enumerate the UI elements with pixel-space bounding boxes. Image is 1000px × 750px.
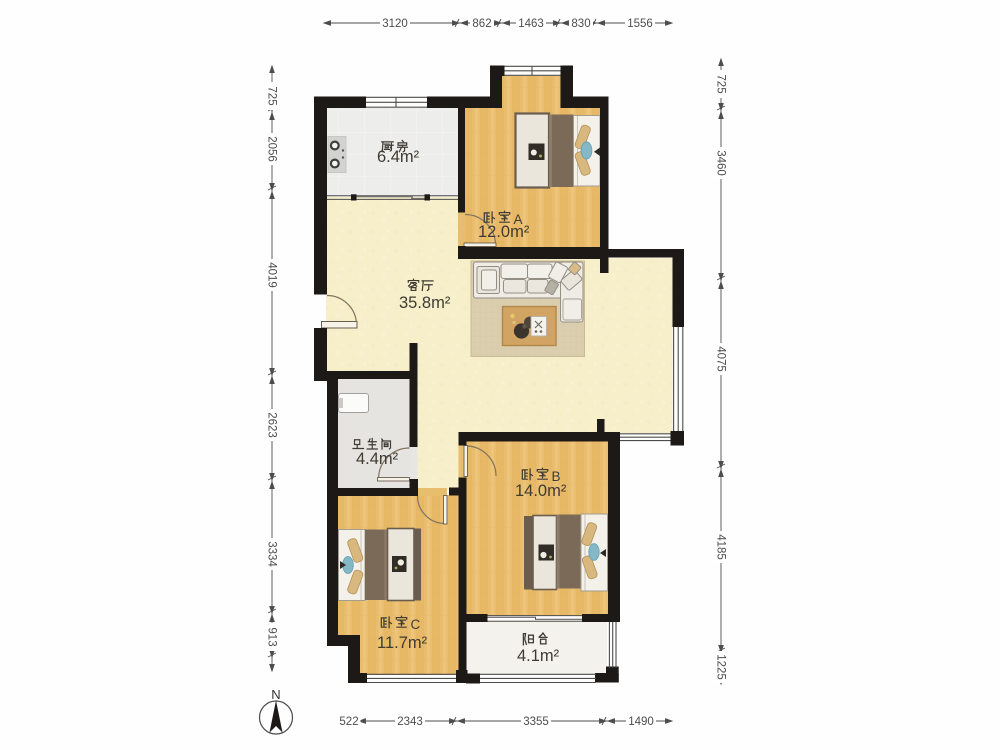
svg-text:1463: 1463 [518, 18, 544, 30]
svg-text:3334: 3334 [266, 541, 278, 567]
svg-text:4019: 4019 [266, 262, 278, 288]
svg-text:522: 522 [339, 716, 358, 728]
svg-text:862: 862 [472, 18, 491, 30]
svg-text:725: 725 [266, 86, 278, 105]
svg-text:4.4m²: 4.4m² [356, 450, 399, 468]
svg-text:830: 830 [571, 18, 590, 30]
svg-text:3120: 3120 [382, 18, 408, 30]
svg-text:35.8m²: 35.8m² [399, 294, 451, 312]
svg-text:4075: 4075 [715, 346, 727, 372]
svg-text:6.4m²: 6.4m² [377, 148, 420, 166]
svg-text:C: C [411, 617, 421, 632]
svg-text:1490: 1490 [628, 716, 654, 728]
svg-text:14.0m²: 14.0m² [515, 482, 567, 500]
svg-text:12.0m²: 12.0m² [478, 223, 530, 241]
svg-text:11.7m²: 11.7m² [377, 634, 428, 652]
svg-text:2056: 2056 [266, 136, 278, 162]
svg-text:2343: 2343 [397, 716, 423, 728]
svg-text:725: 725 [715, 74, 727, 93]
svg-text:913: 913 [266, 627, 278, 646]
svg-text:3460: 3460 [715, 150, 727, 176]
svg-text:4.1m²: 4.1m² [517, 647, 560, 665]
svg-text:1556: 1556 [627, 18, 653, 30]
svg-text:3355: 3355 [523, 716, 549, 728]
svg-text:N: N [271, 687, 280, 702]
svg-text:4185: 4185 [715, 534, 727, 560]
svg-text:2623: 2623 [266, 412, 278, 438]
svg-text:1225: 1225 [715, 654, 727, 680]
